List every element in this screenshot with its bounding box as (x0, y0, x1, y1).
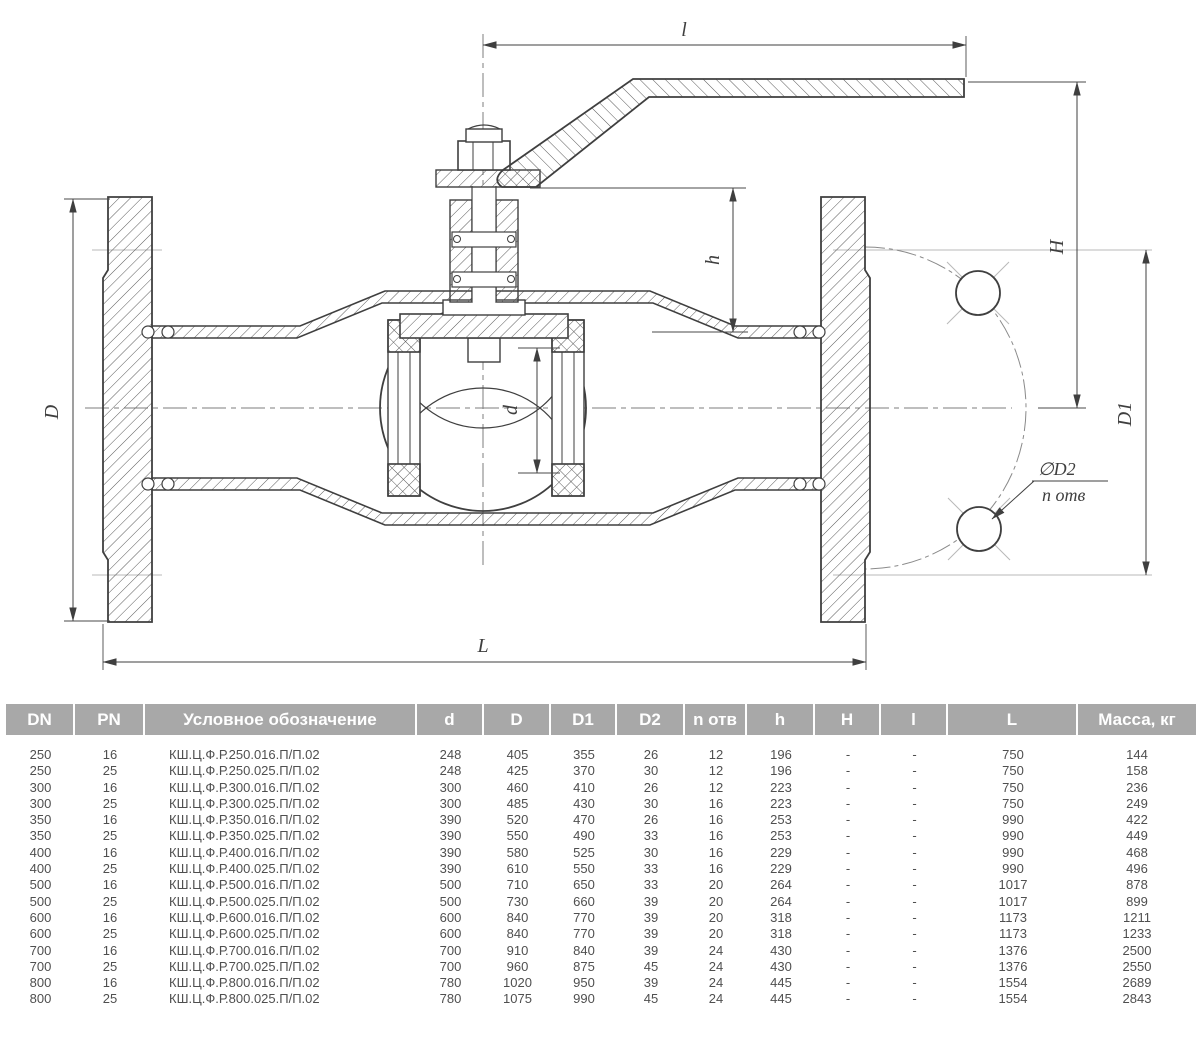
table-cell: 25 (75, 763, 145, 779)
table-cell: 25 (75, 894, 145, 910)
table-cell: 33 (617, 861, 685, 877)
table-cell: 430 (551, 796, 617, 812)
table-cell: 550 (551, 861, 617, 877)
table-cell: 990 (948, 861, 1078, 877)
table-cell: - (815, 780, 881, 796)
column-header-1: PN (75, 704, 145, 740)
table-cell: 370 (551, 763, 617, 779)
table-cell: 445 (747, 975, 815, 991)
table-cell: - (881, 991, 948, 1007)
table-cell: 45 (617, 991, 685, 1007)
table-cell: 300 (417, 780, 484, 796)
table-cell: - (815, 763, 881, 779)
table-cell: 580 (484, 845, 551, 861)
table-cell: 264 (747, 894, 815, 910)
valve-technical-drawing: l h H D1 D d L ∅D2 n отв (0, 0, 1200, 700)
table-cell: 25 (75, 959, 145, 975)
table-cell: 318 (747, 910, 815, 926)
dimensions-table: DNPNУсловное обозначениеdDD1D2n отвhHlLМ… (6, 704, 1196, 1008)
table-cell: КШ.Ц.Ф.Р.250.016.П/П.02 (145, 740, 417, 763)
table-row: 35025КШ.Ц.Ф.Р.350.025.П/П.02390550490331… (6, 828, 1196, 844)
table-cell: - (815, 812, 881, 828)
table-cell: 25 (75, 796, 145, 812)
table-cell: 460 (484, 780, 551, 796)
table-cell: 16 (75, 740, 145, 763)
table-cell: 300 (6, 780, 75, 796)
table-row: 60025КШ.Ц.Ф.Р.600.025.П/П.02600840770392… (6, 926, 1196, 942)
table-cell: 610 (484, 861, 551, 877)
table-cell: 16 (75, 975, 145, 991)
table-cell: - (881, 740, 948, 763)
table-cell: 875 (551, 959, 617, 975)
table-cell: 33 (617, 877, 685, 893)
table-cell: - (815, 926, 881, 942)
table-cell: 12 (685, 780, 747, 796)
table-cell: - (815, 959, 881, 975)
table-row: 40016КШ.Ц.Ф.Р.400.016.П/П.02390580525301… (6, 845, 1196, 861)
table-cell: - (881, 780, 948, 796)
table-cell: 39 (617, 910, 685, 926)
column-header-12: Масса, кг (1078, 704, 1196, 740)
table-cell: 520 (484, 812, 551, 828)
table-cell: 39 (617, 943, 685, 959)
table-header-row: DNPNУсловное обозначениеdDD1D2n отвhHlLМ… (6, 704, 1196, 740)
table-cell: 2689 (1078, 975, 1196, 991)
table-cell: 1233 (1078, 926, 1196, 942)
table-cell: - (881, 845, 948, 861)
table-cell: - (815, 877, 881, 893)
table-cell: 600 (6, 926, 75, 942)
table-cell: 500 (6, 877, 75, 893)
table-cell: 800 (6, 975, 75, 991)
column-header-8: h (747, 704, 815, 740)
bolt-holes (956, 271, 1001, 551)
table-cell: 425 (484, 763, 551, 779)
table-cell: 840 (484, 926, 551, 942)
table-cell: 250 (6, 740, 75, 763)
table-row: 25016КШ.Ц.Ф.Р.250.016.П/П.02248405355261… (6, 740, 1196, 763)
table-cell: - (815, 861, 881, 877)
table-cell: 899 (1078, 894, 1196, 910)
table-cell: 223 (747, 796, 815, 812)
table-cell: 1211 (1078, 910, 1196, 926)
table-cell: 16 (685, 845, 747, 861)
right-flange (821, 197, 870, 622)
table-cell: 485 (484, 796, 551, 812)
table-cell: 45 (617, 959, 685, 975)
table-cell: 25 (75, 828, 145, 844)
table-cell: КШ.Ц.Ф.Р.700.025.П/П.02 (145, 959, 417, 975)
table-cell: 158 (1078, 763, 1196, 779)
table-cell: 16 (685, 828, 747, 844)
table-cell: - (881, 812, 948, 828)
table-cell: - (815, 975, 881, 991)
table-cell: КШ.Ц.Ф.Р.600.025.П/П.02 (145, 926, 417, 942)
table-cell: 500 (6, 894, 75, 910)
table-cell: КШ.Ц.Ф.Р.500.016.П/П.02 (145, 877, 417, 893)
table-cell: 24 (685, 991, 747, 1007)
table-cell: 1017 (948, 877, 1078, 893)
table-cell: 490 (551, 828, 617, 844)
table-cell: 30 (617, 763, 685, 779)
handle-lever (497, 79, 964, 187)
table-cell: 500 (417, 877, 484, 893)
table-cell: 318 (747, 926, 815, 942)
table-cell: 1376 (948, 959, 1078, 975)
column-header-7: n отв (685, 704, 747, 740)
dim-label-D: D (41, 404, 63, 420)
table-cell: 990 (948, 812, 1078, 828)
table-cell: 26 (617, 780, 685, 796)
table-cell: 1554 (948, 991, 1078, 1007)
dim-label-n-otv: n отв (1042, 485, 1085, 505)
table-cell: - (881, 861, 948, 877)
table-cell: 33 (617, 828, 685, 844)
table-cell: 650 (551, 877, 617, 893)
table-cell: 39 (617, 894, 685, 910)
table-cell: 24 (685, 959, 747, 975)
table-cell: - (881, 796, 948, 812)
table-cell: 30 (617, 845, 685, 861)
table-cell: 300 (417, 796, 484, 812)
table-cell: 800 (6, 991, 75, 1007)
table-cell: 500 (417, 894, 484, 910)
table-cell: 730 (484, 894, 551, 910)
column-header-2: Условное обозначение (145, 704, 417, 740)
table-cell: - (815, 796, 881, 812)
table-cell: 1554 (948, 975, 1078, 991)
table-cell: 12 (685, 763, 747, 779)
column-header-4: D (484, 704, 551, 740)
table-cell: 468 (1078, 845, 1196, 861)
table-cell: 25 (75, 991, 145, 1007)
dim-label-d: d (500, 404, 522, 415)
table-cell: 1173 (948, 926, 1078, 942)
table-cell: 390 (417, 812, 484, 828)
table-cell: 390 (417, 828, 484, 844)
table-cell: - (815, 845, 881, 861)
table-cell: КШ.Ц.Ф.Р.800.025.П/П.02 (145, 991, 417, 1007)
table-cell: 496 (1078, 861, 1196, 877)
table-cell: 16 (75, 812, 145, 828)
table-cell: 660 (551, 894, 617, 910)
table-cell: 750 (948, 796, 1078, 812)
table-cell: 20 (685, 910, 747, 926)
table-cell: 750 (948, 763, 1078, 779)
table-cell: 390 (417, 861, 484, 877)
table-cell: 780 (417, 991, 484, 1007)
table-cell: - (815, 943, 881, 959)
table-cell: 780 (417, 975, 484, 991)
column-header-6: D2 (617, 704, 685, 740)
table-cell: - (881, 943, 948, 959)
column-header-10: l (881, 704, 948, 740)
table-cell: - (881, 959, 948, 975)
table-cell: 910 (484, 943, 551, 959)
column-header-9: H (815, 704, 881, 740)
table-cell: 39 (617, 975, 685, 991)
table-cell: - (881, 910, 948, 926)
table-cell: 16 (685, 812, 747, 828)
table-cell: - (881, 828, 948, 844)
table-cell: 39 (617, 926, 685, 942)
table-cell: 250 (6, 763, 75, 779)
table-cell: 400 (6, 861, 75, 877)
table-cell: 16 (75, 780, 145, 796)
column-header-0: DN (6, 704, 75, 740)
table-cell: 710 (484, 877, 551, 893)
table-cell: 253 (747, 812, 815, 828)
table-cell: 430 (747, 959, 815, 975)
table-cell: 253 (747, 828, 815, 844)
left-flange (103, 197, 152, 622)
table-cell: 350 (6, 828, 75, 844)
dim-label-h: h (702, 255, 724, 265)
table-cell: 196 (747, 763, 815, 779)
table-cell: 449 (1078, 828, 1196, 844)
table-cell: 16 (75, 910, 145, 926)
table-cell: 700 (417, 943, 484, 959)
table-cell: 400 (6, 845, 75, 861)
table-cell: 840 (551, 943, 617, 959)
table-cell: 950 (551, 975, 617, 991)
valve-datasheet-page: l h H D1 D d L ∅D2 n отв (0, 0, 1200, 1064)
table-cell: 223 (747, 780, 815, 796)
column-header-11: L (948, 704, 1078, 740)
table-cell: - (881, 763, 948, 779)
table-cell: - (881, 926, 948, 942)
table-cell: - (881, 975, 948, 991)
column-header-5: D1 (551, 704, 617, 740)
table-cell: - (881, 894, 948, 910)
table-row: 25025КШ.Ц.Ф.Р.250.025.П/П.02248425370301… (6, 763, 1196, 779)
table-cell: 30 (617, 796, 685, 812)
table-cell: 600 (6, 910, 75, 926)
table-cell: 1075 (484, 991, 551, 1007)
table-cell: 410 (551, 780, 617, 796)
table-cell: 24 (685, 975, 747, 991)
table-cell: КШ.Ц.Ф.Р.600.016.П/П.02 (145, 910, 417, 926)
table-cell: - (815, 910, 881, 926)
table-cell: КШ.Ц.Ф.Р.300.025.П/П.02 (145, 796, 417, 812)
table-cell: 25 (75, 861, 145, 877)
table-cell: 840 (484, 910, 551, 926)
table-cell: - (815, 991, 881, 1007)
dimension-l (483, 36, 966, 77)
table-cell: 1173 (948, 910, 1078, 926)
dim-label-D1: D1 (1114, 402, 1136, 427)
table-cell: 1017 (948, 894, 1078, 910)
table-row: 70016КШ.Ц.Ф.Р.700.016.П/П.02700910840392… (6, 943, 1196, 959)
table-cell: 16 (75, 845, 145, 861)
table-body: 25016КШ.Ц.Ф.Р.250.016.П/П.02248405355261… (6, 740, 1196, 1008)
table-cell: 878 (1078, 877, 1196, 893)
table-cell: КШ.Ц.Ф.Р.500.025.П/П.02 (145, 894, 417, 910)
table-cell: 144 (1078, 740, 1196, 763)
table-cell: 990 (948, 845, 1078, 861)
dimension-H (968, 82, 1086, 408)
table-cell: 422 (1078, 812, 1196, 828)
table-cell: 1020 (484, 975, 551, 991)
table-cell: КШ.Ц.Ф.Р.300.016.П/П.02 (145, 780, 417, 796)
table-cell: 20 (685, 894, 747, 910)
table-row: 30025КШ.Ц.Ф.Р.300.025.П/П.02300485430301… (6, 796, 1196, 812)
table-cell: КШ.Ц.Ф.Р.250.025.П/П.02 (145, 763, 417, 779)
table-row: 35016КШ.Ц.Ф.Р.350.016.П/П.02390520470261… (6, 812, 1196, 828)
table-cell: 470 (551, 812, 617, 828)
table-cell: 390 (417, 845, 484, 861)
table-cell: 770 (551, 910, 617, 926)
table-cell: 550 (484, 828, 551, 844)
column-header-3: d (417, 704, 484, 740)
table-cell: 236 (1078, 780, 1196, 796)
dim-label-phiD2: ∅D2 (1038, 459, 1076, 479)
dim-label-l: l (681, 19, 687, 41)
table-cell: 25 (75, 926, 145, 942)
table-cell: 700 (6, 959, 75, 975)
table-cell: 1376 (948, 943, 1078, 959)
table-cell: - (881, 877, 948, 893)
table-cell: 12 (685, 740, 747, 763)
table-cell: 26 (617, 740, 685, 763)
table-cell: 20 (685, 926, 747, 942)
table-cell: 525 (551, 845, 617, 861)
table-cell: 229 (747, 861, 815, 877)
table-cell: 405 (484, 740, 551, 763)
table-cell: 990 (551, 991, 617, 1007)
table-cell: 770 (551, 926, 617, 942)
table-row: 50025КШ.Ц.Ф.Р.500.025.П/П.02500730660392… (6, 894, 1196, 910)
table-cell: 248 (417, 740, 484, 763)
table-cell: 2500 (1078, 943, 1196, 959)
table-cell: 300 (6, 796, 75, 812)
table-cell: 430 (747, 943, 815, 959)
table-row: 40025КШ.Ц.Ф.Р.400.025.П/П.02390610550331… (6, 861, 1196, 877)
table-cell: КШ.Ц.Ф.Р.350.025.П/П.02 (145, 828, 417, 844)
table-cell: 990 (948, 828, 1078, 844)
table-cell: 20 (685, 877, 747, 893)
table-row: 70025КШ.Ц.Ф.Р.700.025.П/П.02700960875452… (6, 959, 1196, 975)
table-cell: 16 (685, 796, 747, 812)
table-cell: - (815, 740, 881, 763)
table-row: 30016КШ.Ц.Ф.Р.300.016.П/П.02300460410261… (6, 780, 1196, 796)
table-cell: 700 (6, 943, 75, 959)
stem-nut (458, 141, 510, 170)
table-cell: 16 (685, 861, 747, 877)
table-cell: 24 (685, 943, 747, 959)
table-row: 50016КШ.Ц.Ф.Р.500.016.П/П.02500710650332… (6, 877, 1196, 893)
dim-label-H: H (1046, 238, 1068, 255)
table-cell: 750 (948, 740, 1078, 763)
table-cell: КШ.Ц.Ф.Р.400.025.П/П.02 (145, 861, 417, 877)
table-cell: 264 (747, 877, 815, 893)
table-cell: 350 (6, 812, 75, 828)
table-cell: 249 (1078, 796, 1196, 812)
table-cell: 700 (417, 959, 484, 975)
table-row: 60016КШ.Ц.Ф.Р.600.016.П/П.02600840770392… (6, 910, 1196, 926)
table-cell: 229 (747, 845, 815, 861)
table-cell: 355 (551, 740, 617, 763)
table-cell: КШ.Ц.Ф.Р.800.016.П/П.02 (145, 975, 417, 991)
table-cell: 2550 (1078, 959, 1196, 975)
table-cell: 2843 (1078, 991, 1196, 1007)
table-cell: 26 (617, 812, 685, 828)
table-cell: - (815, 828, 881, 844)
table-cell: 445 (747, 991, 815, 1007)
table-cell: 16 (75, 943, 145, 959)
table-cell: 750 (948, 780, 1078, 796)
table-cell: 600 (417, 926, 484, 942)
table-cell: 16 (75, 877, 145, 893)
dim-label-L: L (476, 635, 488, 657)
table-row: 80016КШ.Ц.Ф.Р.800.016.П/П.02780102095039… (6, 975, 1196, 991)
table-cell: - (815, 894, 881, 910)
table-row: 80025КШ.Ц.Ф.Р.800.025.П/П.02780107599045… (6, 991, 1196, 1007)
table-cell: КШ.Ц.Ф.Р.350.016.П/П.02 (145, 812, 417, 828)
table-cell: 960 (484, 959, 551, 975)
table-cell: 600 (417, 910, 484, 926)
table-cell: КШ.Ц.Ф.Р.700.016.П/П.02 (145, 943, 417, 959)
table-cell: 248 (417, 763, 484, 779)
table-cell: 196 (747, 740, 815, 763)
table-cell: КШ.Ц.Ф.Р.400.016.П/П.02 (145, 845, 417, 861)
